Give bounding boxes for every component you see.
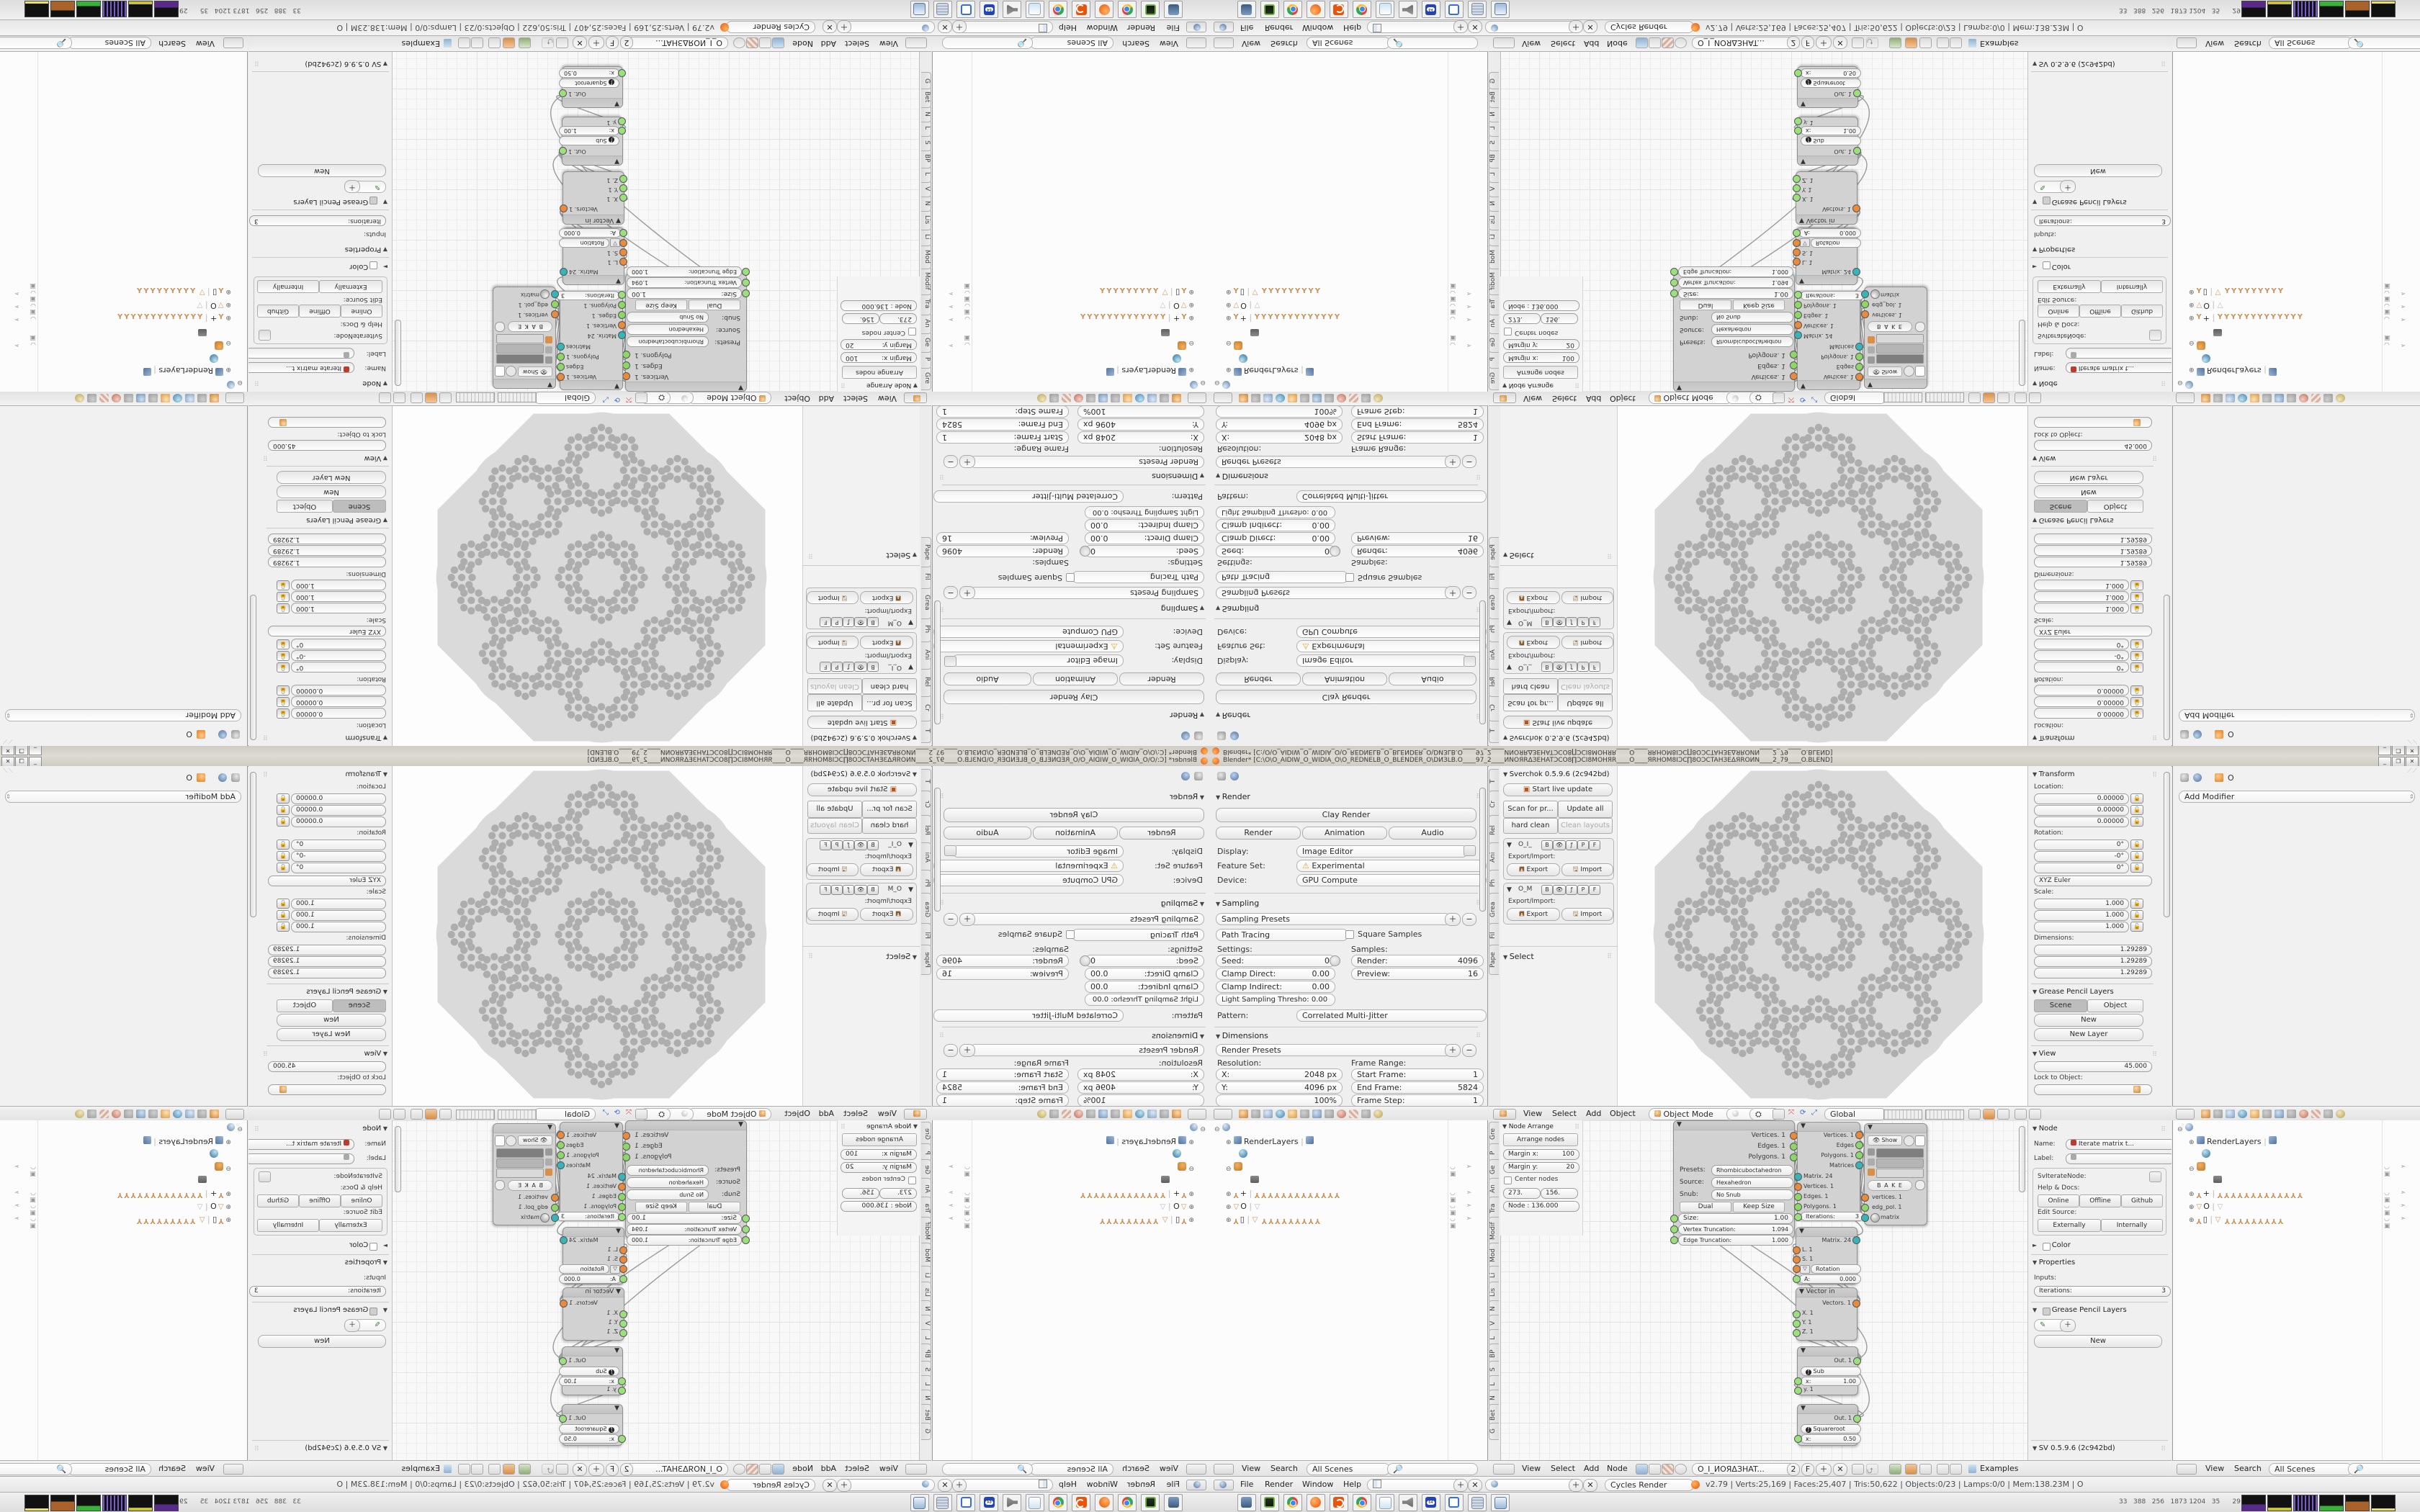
restrict-toggles[interactable]: ◡ ➣ ▣	[0, 1189, 36, 1204]
lock-icon[interactable]: 🔓	[2130, 851, 2143, 861]
light-toggle[interactable]	[506, 1135, 516, 1146]
source-dropdown[interactable]: Hexahedron	[627, 1177, 709, 1188]
search-input[interactable]: 🔎	[0, 1463, 72, 1475]
outliner-row-armature-parent[interactable]: ⊖	[215, 1162, 231, 1174]
seed-field[interactable]: Seed:0	[1216, 955, 1335, 967]
mode-dropdown[interactable]: Object Mode	[1649, 1108, 1732, 1120]
fake-user-toggle[interactable]: F	[820, 840, 831, 850]
fake-user-toggle[interactable]: F	[820, 885, 831, 895]
fake-user-toggle[interactable]: F	[820, 617, 831, 627]
export-button[interactable]: 🖪 Export	[860, 863, 913, 876]
constraints-tab-icon[interactable]	[2262, 394, 2272, 402]
clamp-indirect-field[interactable]: Clamp Indirect:0.00	[1216, 981, 1335, 993]
scale-z-field[interactable]: 1.000	[2034, 580, 2129, 590]
gp-scene-button[interactable]: Scene	[2034, 999, 2087, 1012]
socket-out[interactable]	[557, 1141, 565, 1149]
process-toggle[interactable]: P	[1577, 662, 1589, 672]
grease-pencil-layers-title[interactable]: Grease Pencil Layers	[2033, 988, 2114, 996]
dual-button[interactable]: Dual	[689, 1202, 740, 1212]
restrict-toggles[interactable]: ◡ ➣ ▣	[1450, 334, 1488, 348]
taskbar-display-app-icon[interactable]	[1237, 1494, 1256, 1511]
socket-in[interactable]	[1793, 1310, 1801, 1318]
screen-layout-selector[interactable]	[958, 21, 1053, 33]
world-tab-icon[interactable]	[2238, 1110, 2247, 1118]
layout-delete-button[interactable]: ✕	[1468, 1479, 1482, 1492]
render-layers-tab-icon[interactable]	[1160, 394, 1169, 402]
bake-toggle[interactable]: B	[1541, 617, 1553, 627]
socket-out[interactable]	[1853, 1415, 1861, 1423]
editor-type-button[interactable]	[1188, 1109, 1206, 1120]
tab-paper[interactable]: Pape	[1489, 537, 1499, 567]
lock-icon[interactable]: 🔓	[277, 863, 290, 873]
editor-type-button[interactable]	[223, 1464, 243, 1475]
clean-layouts-button[interactable]: Clean layouts	[807, 818, 862, 834]
menu-object[interactable]: Object	[784, 1109, 810, 1118]
node-header[interactable]: ▼	[563, 1405, 622, 1414]
color-toggle[interactable]	[1915, 366, 1925, 377]
clay-render-button[interactable]: Clay Render	[1216, 690, 1476, 704]
node-header[interactable]: ▼ Vector in	[563, 1288, 624, 1297]
socket-in[interactable]	[1793, 194, 1801, 202]
grease-pencil-panel-title[interactable]: Grease Pencil Layers	[293, 1306, 387, 1314]
node-header[interactable]: ▼	[1796, 275, 1857, 284]
search-input[interactable]: 🔎	[1387, 1463, 1478, 1475]
clamp-direct-field[interactable]: Clamp Direct:0.00	[1216, 532, 1335, 544]
display-dropdown[interactable]: Image Editor	[1296, 845, 1468, 858]
menu-select[interactable]: Select	[845, 1464, 869, 1473]
lock-icon[interactable]: 🔓	[277, 708, 290, 719]
lock-icon[interactable]: 🔓	[277, 580, 290, 590]
render-presets-dropdown[interactable]: Render Presets	[1216, 1044, 1451, 1056]
add-modifier-dropdown[interactable]: Add Modifier	[5, 709, 241, 721]
socket-in[interactable]	[1861, 1194, 1869, 1202]
dual-button[interactable]: Dual	[1680, 300, 1731, 310]
snap-element-icon[interactable]	[411, 392, 423, 403]
taskbar-blender-icon[interactable]	[1307, 1494, 1325, 1511]
socket-in[interactable]	[1861, 1204, 1869, 1212]
menu-render[interactable]: Render	[1127, 1480, 1155, 1489]
export-button[interactable]: 🖪 Export	[1507, 908, 1560, 921]
outliner-row-armature-box[interactable]: ⊕Y▯ | ▽ YYYYYYYYY	[135, 287, 231, 298]
color-checkbox[interactable]	[369, 261, 377, 269]
outliner-row-world[interactable]	[1173, 1149, 1181, 1161]
pin-icon[interactable]	[231, 730, 240, 739]
scrollbar[interactable]	[934, 600, 941, 724]
socket-in[interactable]	[618, 1435, 626, 1443]
render-opengl-anim-icon[interactable]	[2029, 392, 2041, 403]
snap-align-icon[interactable]	[1773, 392, 1785, 403]
taskbar-blender-icon[interactable]	[1307, 1, 1325, 18]
rotation-x-field[interactable]: 0°	[291, 840, 386, 850]
menu-search[interactable]: Search	[2234, 39, 2262, 48]
transform-panel-title[interactable]: Transform	[2033, 770, 2074, 778]
outliner-row-mesh-o[interactable]: ⊕▽O | ▽	[196, 1201, 231, 1212]
node-iterate[interactable]: ▼ Vertices. 1 Edges Polygons. 1 Matrices…	[560, 1122, 623, 1220]
layers-widget[interactable]	[1925, 392, 1964, 402]
tab-grease-pencil[interactable]: Grea	[1489, 893, 1499, 926]
snub-dropdown[interactable]: No Snub	[1711, 1189, 1793, 1200]
socket-in[interactable]	[618, 291, 626, 299]
socket-out[interactable]	[1855, 1131, 1863, 1139]
taskbar-chrome2-icon[interactable]	[1353, 1494, 1371, 1511]
dual-button[interactable]: Dual	[1680, 1202, 1731, 1212]
manipulator-rotate-icon[interactable]: ⟳	[614, 395, 620, 403]
resolution-y-field[interactable]: Y:4096 px	[1077, 1081, 1204, 1094]
particles-tab-icon[interactable]	[2323, 394, 2333, 402]
internally-button[interactable]: Internally	[2101, 280, 2163, 293]
screen-layout-selector[interactable]	[1367, 21, 1462, 33]
update-all-button[interactable]: Update all	[807, 694, 862, 711]
lens-field[interactable]: 45.000	[2034, 1061, 2152, 1072]
socket-in[interactable]	[618, 69, 626, 77]
magnet-icon[interactable]	[503, 1464, 515, 1475]
pin-icon[interactable]	[1852, 37, 1864, 48]
tab-relations[interactable]: Rel	[921, 815, 931, 845]
data-tab-icon[interactable]	[2287, 1110, 2296, 1118]
render-engine-dropdown[interactable]: Cycles Render	[726, 1479, 815, 1491]
color-checkbox[interactable]	[2043, 261, 2051, 269]
menu-help[interactable]: Help	[1343, 1480, 1361, 1489]
layers-widget[interactable]	[456, 392, 495, 402]
taskbar-display-app-icon[interactable]	[1164, 1494, 1183, 1511]
scrollbar[interactable]	[250, 595, 256, 740]
restrict-toggles[interactable]: ◡ ➣ ▣	[932, 1202, 970, 1217]
rotation-y-field[interactable]: -0°	[2034, 851, 2129, 862]
menu-view[interactable]: View	[878, 1109, 897, 1118]
outliner-row-armature-parent[interactable]: ⊖	[2189, 1162, 2205, 1174]
scene-tab-icon[interactable]	[1263, 1110, 1273, 1118]
github-button[interactable]: Github	[2121, 305, 2163, 318]
manipulator-scale-icon[interactable]: ⤢	[1811, 395, 1817, 403]
lock-interface-icon[interactable]	[944, 845, 956, 856]
select-panel-title[interactable]: Select	[886, 551, 917, 560]
node-label-field[interactable]	[248, 348, 354, 359]
menu-examples[interactable]: Examples	[1980, 39, 2018, 48]
snap-element-icon[interactable]	[411, 1109, 423, 1120]
dimensions-x-field[interactable]: 1.29289	[268, 945, 386, 955]
menu-search[interactable]: Search	[2234, 1464, 2262, 1473]
editor-type-button[interactable]	[904, 392, 927, 403]
vertex-truncation-field[interactable]: Vertex Truncation:1.094	[1678, 277, 1793, 288]
sampling-presets-dropdown[interactable]: Sampling Presets	[969, 913, 1204, 925]
menu-search[interactable]: Search	[1270, 1464, 1298, 1473]
lock-icon[interactable]: 🔓	[277, 685, 290, 696]
node-panel-title[interactable]: Node	[362, 379, 387, 387]
lock-icon[interactable]: 🔓	[277, 805, 290, 815]
mode-dropdown[interactable]: Object Mode	[1649, 392, 1732, 404]
lock-icon[interactable]: 🔓	[277, 840, 290, 850]
editor-type-button[interactable]	[1214, 22, 1234, 32]
update-all-button[interactable]: Update all	[1558, 694, 1613, 711]
snap-element-icon[interactable]	[1997, 392, 2009, 403]
proportional-edit-icon[interactable]	[439, 392, 452, 403]
keep-size-button[interactable]: Keep Size	[635, 300, 687, 310]
pattern-dropdown[interactable]: Correlated Multi-Jitter	[1296, 1009, 1487, 1022]
minimize-button[interactable]: _	[2378, 757, 2391, 767]
menu-file[interactable]: File	[1167, 1480, 1180, 1489]
socket-in[interactable]	[551, 1194, 559, 1202]
outliner-row-renderlayers[interactable]: ⊕ RenderLayers |	[1226, 1136, 1314, 1148]
socket-in[interactable]	[618, 127, 626, 135]
animate-toggle[interactable]: ƒ	[843, 617, 854, 627]
location-z-field[interactable]: 0.00000	[2034, 816, 2129, 827]
pattern-dropdown[interactable]: Correlated Multi-Jitter	[933, 1009, 1124, 1022]
offline-button[interactable]: Offline	[299, 1194, 341, 1207]
socket-out[interactable]	[559, 147, 567, 155]
x-field[interactable]: x:0.50	[559, 68, 619, 78]
rotation-z-field[interactable]: 0°	[291, 863, 386, 873]
render-panel-title[interactable]: Render	[1216, 792, 1250, 801]
location-y-field[interactable]: 0.00000	[291, 696, 386, 707]
gp-new-button[interactable]: New	[2034, 164, 2162, 177]
dimensions-panel-title[interactable]: Dimensions	[1216, 472, 1268, 481]
socket-in[interactable]	[619, 175, 627, 183]
process-toggle[interactable]: P	[1577, 617, 1589, 627]
socket-in[interactable]	[551, 1214, 559, 1222]
location-y-field[interactable]: 0.00000	[291, 805, 386, 816]
size-field[interactable]: Size:1.00	[1678, 1213, 1793, 1224]
pin-icon[interactable]	[556, 1464, 568, 1475]
gp-object-button[interactable]: Object	[277, 999, 333, 1012]
preset-add-button[interactable]: ＋	[1445, 586, 1461, 599]
material-tab-icon[interactable]	[2299, 394, 2308, 402]
taskbar-green-app-icon[interactable]	[1260, 1494, 1279, 1511]
lens-field[interactable]: 45.000	[2034, 440, 2152, 451]
tool-icon[interactable]	[2193, 730, 2202, 739]
dimensions-y-field[interactable]: 1.29289	[268, 956, 386, 967]
online-button[interactable]: Online	[2038, 305, 2079, 318]
render-tab-icon[interactable]	[1172, 394, 1181, 402]
socket-in[interactable]	[618, 1173, 626, 1181]
rotation-z-field[interactable]: 0°	[291, 639, 386, 649]
texture-tab-icon[interactable]	[1349, 1110, 1358, 1118]
node-header[interactable]: ▼	[563, 1347, 622, 1356]
render-layers-tab-icon[interactable]	[197, 394, 207, 402]
orientation-dropdown[interactable]: Global	[1824, 392, 1886, 404]
outliner-row-world[interactable]	[1239, 351, 1247, 363]
sverchok-panel-title[interactable]: Sverchok 0.5.9.6 (2c942bd)	[1503, 770, 1610, 778]
outliner-row-armature-box[interactable]: ⊕Y▯ | ▽ YYYYYYYYY	[2189, 1214, 2285, 1225]
render-layers-tab-icon[interactable]	[197, 1110, 207, 1118]
taskbar-imageviewer-icon[interactable]	[1445, 1, 1464, 18]
editor-type-button[interactable]	[1186, 1464, 1206, 1475]
socket-out[interactable]	[557, 1131, 565, 1139]
node-header[interactable]: ▼	[1865, 379, 1927, 388]
node-matrix-in[interactable]: ▼ Matrix. 24 L. 1 S. 1 ▽ Rotation A:0.00…	[1796, 228, 1857, 285]
paste-icon[interactable]	[1950, 37, 1962, 48]
outliner-scene-row[interactable]: ⊖	[2177, 1123, 2193, 1135]
socket-in[interactable]	[742, 1215, 750, 1223]
socket-in[interactable]	[1794, 69, 1802, 77]
source-dropdown[interactable]: Hexahedron	[1711, 1177, 1793, 1188]
location-z-field[interactable]: 0.00000	[2034, 685, 2129, 696]
socket-in[interactable]	[618, 1203, 626, 1211]
bake-toggle[interactable]: B	[1541, 662, 1553, 672]
offline-button[interactable]: Offline	[2079, 1194, 2121, 1207]
export-button[interactable]: 🖪 Export	[860, 908, 913, 921]
taskbar-chrome-icon[interactable]	[1118, 1494, 1137, 1511]
integrator-dropdown[interactable]: Path Tracing	[1072, 571, 1204, 583]
new-tree-button[interactable]: ＋	[588, 36, 604, 49]
resolution-x-field[interactable]: X:2048 px	[1077, 1068, 1204, 1081]
preset-add-button[interactable]: ＋	[1445, 455, 1461, 468]
properties-panel-title[interactable]: Properties	[2033, 1259, 2075, 1266]
taskbar-display-app-icon[interactable]	[1164, 1, 1183, 18]
socket-in[interactable]	[1670, 268, 1678, 276]
update-bug-icon[interactable]	[519, 1464, 531, 1475]
integrator-dropdown[interactable]: Path Tracing	[1216, 571, 1348, 583]
tab-grease-pencil[interactable]: Grea	[921, 586, 931, 619]
sv-panel-title[interactable]: SV 0.5.9.6 (2c942bd)	[2033, 60, 2115, 68]
sverchok-icon[interactable]	[772, 1464, 784, 1475]
vertex-color-swatch[interactable]	[496, 354, 544, 364]
socket-in[interactable]	[1794, 301, 1802, 309]
sv-panel-title[interactable]: SV 0.5.9.6 (2c942bd)	[305, 1444, 387, 1452]
menu-window[interactable]: Window	[1087, 23, 1118, 32]
particles-tab-icon[interactable]	[1049, 394, 1059, 402]
viewport-3d[interactable]: T Cr Rel Ani Ph Grea Fil Pape Sverchok 0…	[248, 406, 931, 746]
menu-window[interactable]: Window	[1302, 1480, 1333, 1489]
lock-icon[interactable]: 🔓	[277, 603, 290, 613]
node-header[interactable]: ▼ Vector in	[563, 215, 624, 224]
location-z-field[interactable]: 0.00000	[291, 816, 386, 827]
magnet-icon[interactable]	[1905, 1464, 1917, 1475]
taskbar-chrome2-icon[interactable]	[1049, 1494, 1067, 1511]
socket-in[interactable]	[1793, 1275, 1801, 1283]
paste-icon[interactable]	[458, 37, 470, 48]
data-tab-icon[interactable]	[124, 394, 133, 402]
menu-select[interactable]: Select	[843, 394, 868, 403]
edge-truncation-field[interactable]: Edge Truncation:1.000	[1678, 266, 1793, 277]
layout-delete-button[interactable]: ✕	[938, 20, 952, 33]
socket-in[interactable]	[618, 1193, 626, 1201]
color-checkbox[interactable]	[2043, 1243, 2051, 1251]
socket-out[interactable]	[1853, 89, 1861, 97]
location-y-field[interactable]: 0.00000	[2034, 805, 2129, 816]
copy-icon[interactable]	[471, 37, 483, 48]
show-eye-toggle[interactable]: 👁	[854, 662, 867, 672]
seed-anim-icon[interactable]	[1330, 955, 1340, 966]
x-field[interactable]: x:0.50	[559, 1434, 619, 1444]
view-panel-title[interactable]: View	[2033, 1050, 2056, 1058]
grease-pencil-layers-title[interactable]: Grease Pencil Layers	[306, 516, 387, 524]
offline-button[interactable]: Offline	[2079, 305, 2121, 318]
node-viewer-draw[interactable]: ▼ 👁 Show B A K E vertices. 1 edg_pol. 1 …	[1864, 287, 1927, 389]
node-header[interactable]: ▼	[493, 1124, 555, 1133]
dimensions-panel-title[interactable]: Dimensions	[1152, 472, 1204, 481]
angle-field[interactable]: A:0.000	[1799, 1274, 1861, 1284]
material-tab-icon[interactable]	[112, 394, 121, 402]
editor-type-button[interactable]	[1493, 1109, 1516, 1120]
location-y-field[interactable]: 0.00000	[2034, 696, 2129, 707]
preview-samples-field[interactable]: Preview:16	[1351, 532, 1484, 544]
socket-in[interactable]	[619, 258, 627, 266]
socket-in[interactable]	[1861, 1214, 1869, 1222]
render-tab-icon[interactable]	[1239, 394, 1248, 402]
outliner-row-armature-parent[interactable]: ⊖	[215, 338, 231, 350]
gp-new-layer-button[interactable]: New Layer	[2034, 471, 2143, 484]
socket-out[interactable]	[1852, 1236, 1860, 1244]
scale-x-field[interactable]: 1.000	[2034, 603, 2129, 613]
tab-create[interactable]: Cr	[921, 694, 931, 721]
manipulator-scale-icon[interactable]: ⤢	[603, 1109, 609, 1117]
tab-paper[interactable]: Pape	[921, 945, 931, 975]
socket-out[interactable]	[557, 343, 565, 351]
socket-in[interactable]	[742, 1225, 750, 1233]
node-editor[interactable]: Gre P Ge An Tra Modif Mod Li Lis N V L B…	[248, 52, 931, 392]
outliner-row-renderlayers[interactable]: ⊕ RenderLayers |	[2189, 364, 2277, 376]
world-tab-icon[interactable]	[1276, 1110, 1285, 1118]
taskbar-imageviewer-icon[interactable]	[1445, 1494, 1464, 1511]
socket-in[interactable]	[1793, 229, 1801, 237]
animate-toggle[interactable]: ƒ	[843, 885, 854, 895]
taskbar-chrome2-icon[interactable]	[1049, 1, 1067, 18]
sampling-panel-title[interactable]: Sampling	[1161, 899, 1204, 908]
taskbar-notepad-icon[interactable]	[1026, 1494, 1044, 1511]
scrollbar[interactable]	[2019, 320, 2025, 386]
object-tab-icon[interactable]	[1123, 394, 1132, 402]
socket-in[interactable]	[551, 310, 559, 318]
render-button[interactable]: Render	[1119, 672, 1204, 685]
physics-tab-icon[interactable]	[75, 394, 84, 402]
externally-button[interactable]: Externally	[2038, 280, 2101, 293]
editor-type-button[interactable]	[1186, 37, 1206, 48]
end-frame-field[interactable]: End Frame:5824	[936, 1081, 1069, 1094]
resolution-y-field[interactable]: Y:4096 px	[1077, 418, 1204, 431]
restrict-toggles[interactable]: ◡ ➣ ▣	[932, 334, 970, 348]
menu-add[interactable]: Add	[819, 1109, 834, 1118]
menu-render[interactable]: Render	[1265, 23, 1293, 32]
lock-icon[interactable]: 🔓	[2130, 863, 2143, 873]
color-toggle[interactable]	[1915, 1135, 1925, 1146]
texture-icon[interactable]	[746, 37, 758, 48]
preset-add-button[interactable]: ＋	[959, 455, 975, 468]
scale-y-field[interactable]: 1.000	[2034, 910, 2129, 921]
socket-out[interactable]	[622, 372, 630, 380]
bake-toggle[interactable]: B	[867, 840, 879, 850]
bake-settings-icon[interactable]	[495, 1180, 505, 1190]
restrict-toggles[interactable]: ◡ ➣ ▣	[0, 295, 36, 310]
socket-in[interactable]	[1794, 127, 1802, 135]
import-button[interactable]: 🖫 Import	[807, 863, 859, 876]
search-input[interactable]: 🔎	[942, 1463, 1033, 1475]
outliner-row-mesh-o[interactable]: ⊕▽O | ▽	[1226, 300, 1261, 311]
vertex-color-swatch[interactable]	[1876, 1148, 1924, 1158]
outliner-row-armature-plus[interactable]: ⊕Y+ | YYYYYYYYYYYYY	[2189, 1188, 2304, 1200]
preview-samples-field[interactable]: Preview:16	[1351, 968, 1484, 980]
node-editor[interactable]: Gre P Ge An Tra Modif Mod Li Lis N V L B…	[1489, 52, 2172, 392]
menu-file[interactable]: File	[1167, 23, 1180, 32]
menu-view[interactable]: View	[196, 1464, 215, 1473]
menu-add[interactable]: Add	[1584, 39, 1599, 48]
socket-in[interactable]	[1794, 1173, 1802, 1181]
display-mode-dropdown[interactable]: All Scenes	[2269, 37, 2352, 49]
socket-in[interactable]	[1793, 248, 1801, 256]
snap-element-icon[interactable]	[1997, 1109, 2009, 1120]
restrict-toggles[interactable]: ◡ ➣ ▣	[0, 1164, 36, 1178]
data-tab-icon[interactable]	[1086, 1110, 1095, 1118]
end-frame-field[interactable]: End Frame:5824	[936, 418, 1069, 431]
square-samples-checkbox[interactable]	[1345, 930, 1354, 939]
color-panel-title[interactable]: Color	[349, 1241, 387, 1249]
frame-step-field[interactable]: Frame Step:1	[936, 1094, 1069, 1106]
unlink-tree-button[interactable]: ✕	[573, 36, 587, 49]
render-layers-tab-icon[interactable]	[1251, 1110, 1260, 1118]
seed-field[interactable]: Seed:0	[1216, 545, 1335, 557]
animation-button[interactable]: Animation	[1033, 672, 1118, 685]
socket-in[interactable]	[1861, 300, 1869, 308]
bake-settings-icon[interactable]	[495, 322, 505, 332]
